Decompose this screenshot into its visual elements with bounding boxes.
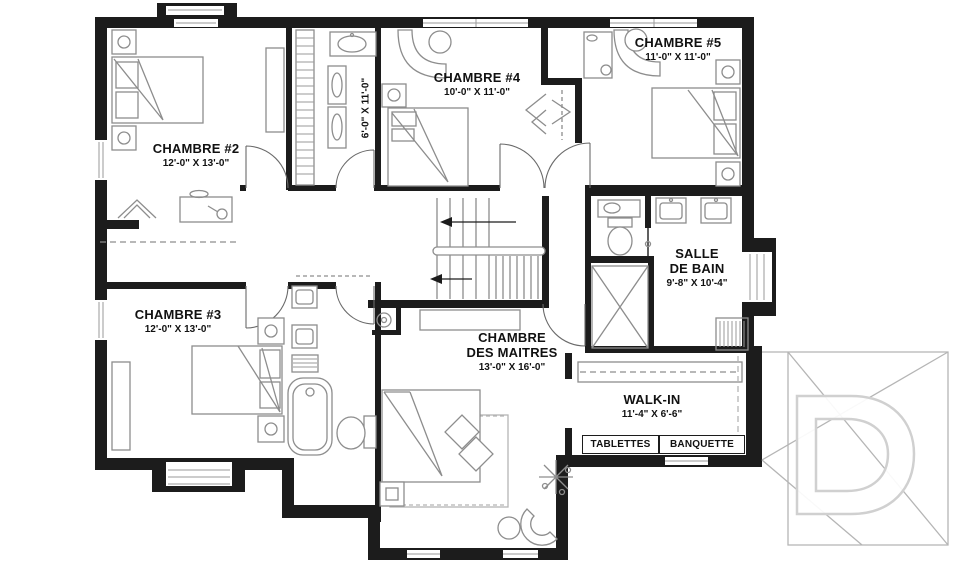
room-name-line1: CHAMBRE (466, 330, 557, 345)
banquette-label-box: BANQUETTE (659, 435, 745, 454)
room-name-line2: DE BAIN (667, 261, 728, 276)
room-name: CHAMBRE #3 (135, 307, 222, 322)
room-name: CHAMBRE #2 (153, 141, 240, 156)
chambre3-furniture (112, 318, 284, 450)
room-name: CHAMBRE #4 (434, 70, 521, 85)
room-name-line2: DES MAITRES (466, 345, 557, 360)
room-dims: 9'-8" X 10'-4" (667, 277, 728, 290)
staircase (430, 198, 545, 299)
room-dims: 12'-0" X 13'-0" (135, 323, 222, 336)
room-name: WALK-IN (622, 392, 682, 407)
room-name: CHAMBRE #5 (635, 35, 722, 50)
room-label-chambre-3: CHAMBRE #3 12'-0" X 13'-0" (135, 307, 222, 336)
room-label-chambre-4: CHAMBRE #4 10'-0" X 11'-0" (434, 70, 521, 99)
chambre2-furniture (100, 30, 284, 242)
room-label-chambre-des-maitres: CHAMBRE DES MAITRES 13'-0" X 16'-0" (466, 330, 557, 374)
garage-roof-sketch (762, 352, 948, 545)
room-dims: 11'-4" X 6'-6" (622, 408, 682, 421)
room-dims: 11'-0" X 11'-0" (635, 51, 722, 64)
room-dims: 12'-0" X 13'-0" (153, 157, 240, 170)
room-label-salle-de-bain: SALLE DE BAIN 9'-8" X 10'-4" (667, 246, 728, 290)
floor-plan-canvas: CHAMBRE #2 12'-0" X 13'-0" CHAMBRE #3 12… (0, 0, 960, 569)
tablettes-label-box: TABLETTES (582, 435, 659, 454)
room-dims: 10'-0" X 11'-0" (434, 86, 521, 99)
room-label-chambre-5: CHAMBRE #5 11'-0" X 11'-0" (635, 35, 722, 64)
room-label-chambre-2: CHAMBRE #2 12'-0" X 13'-0" (153, 141, 240, 170)
room-name-line1: SALLE (667, 246, 728, 261)
watermark-d-logo (797, 396, 914, 514)
room-label-walk-in: WALK-IN 11'-4" X 6'-6" (622, 392, 682, 421)
tub-bathroom-fixtures (288, 276, 376, 455)
room-label-upper-bathroom: 6'-0" X 11'-0" (361, 78, 372, 138)
toilet-room-fixtures (598, 200, 640, 255)
linen-closet (592, 266, 648, 348)
room-dims: 13'-0" X 16'-0" (466, 361, 557, 374)
